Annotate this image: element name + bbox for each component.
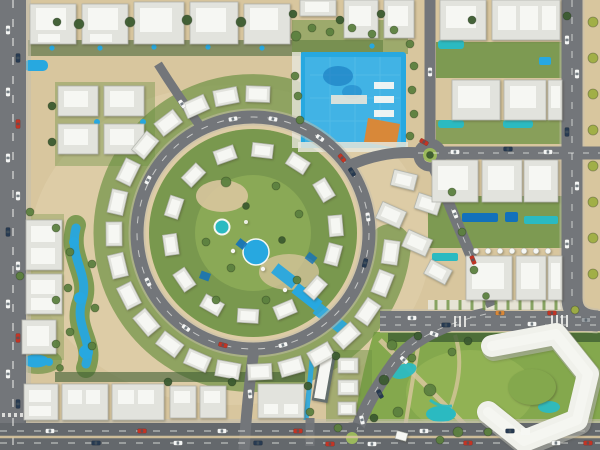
car <box>565 240 569 249</box>
villa-roof-unit <box>341 383 354 392</box>
tree <box>468 16 476 24</box>
tree <box>448 188 456 196</box>
tree <box>293 276 301 284</box>
car <box>464 441 473 445</box>
tree <box>424 384 436 396</box>
tree <box>414 332 422 340</box>
apartment-block-roof-unit <box>264 404 278 414</box>
car <box>326 442 335 446</box>
villa-roof-unit <box>341 361 354 370</box>
car-windshield <box>221 429 224 432</box>
tree <box>306 408 314 416</box>
car <box>575 70 579 79</box>
tree <box>91 304 99 312</box>
apartment-block <box>492 0 560 40</box>
lagoon-pond-3 <box>69 237 79 247</box>
yard-pool-3 <box>151 44 156 49</box>
car-windshield <box>297 429 300 432</box>
tree <box>588 89 598 99</box>
apartment-block-roof-unit <box>542 6 556 30</box>
car-windshield <box>531 322 534 325</box>
tree <box>236 17 246 27</box>
car <box>506 429 515 433</box>
tree <box>74 19 84 29</box>
car-windshield <box>423 429 426 432</box>
car-windshield <box>547 150 550 153</box>
apartment-block <box>482 160 522 202</box>
tree <box>57 365 64 372</box>
tree <box>202 238 210 246</box>
tree <box>243 203 250 210</box>
villa-roof <box>254 145 270 156</box>
car-windshield <box>587 441 590 444</box>
villa <box>170 386 196 418</box>
car-windshield <box>551 311 554 314</box>
car-windshield <box>509 429 512 432</box>
tree <box>588 233 598 243</box>
yard-pool-5 <box>259 45 264 50</box>
umbrella <box>497 248 503 254</box>
tree <box>408 354 416 362</box>
tree <box>410 110 418 118</box>
villa-roof-unit <box>110 129 134 145</box>
car-windshield <box>575 73 578 76</box>
center-main-pool <box>243 239 269 265</box>
villa <box>162 233 179 256</box>
aerial-masterplan-screenshot <box>0 0 600 450</box>
pool-deck-pier-3 <box>374 110 394 117</box>
apartment-block-roof-unit <box>118 390 134 404</box>
tree <box>427 152 434 159</box>
apartment-block-roof-unit <box>250 8 278 30</box>
tree <box>370 414 378 422</box>
apartment-slab-roof-unit <box>31 280 55 294</box>
car <box>408 316 417 320</box>
tree <box>453 427 463 437</box>
car-windshield <box>16 57 19 60</box>
car-windshield <box>231 117 234 121</box>
tree <box>66 328 74 336</box>
tree <box>48 102 56 110</box>
umbrella <box>533 248 539 254</box>
car <box>528 322 537 326</box>
tree <box>390 26 398 34</box>
tree <box>368 30 376 38</box>
apartment-block <box>504 80 546 120</box>
pool-cabana <box>283 288 287 292</box>
car-windshield <box>16 123 19 126</box>
villa-roof-unit <box>204 391 220 403</box>
tree <box>52 340 60 348</box>
apartment-block-roof-unit <box>284 404 298 414</box>
villa-roof <box>331 218 341 234</box>
yard-pool-4 <box>205 44 210 49</box>
yard-pool-6 <box>369 43 374 48</box>
apartment-block <box>258 384 304 418</box>
car <box>582 318 591 322</box>
car <box>218 429 227 433</box>
tree <box>164 378 172 386</box>
apartment-block-roof-unit <box>140 8 172 32</box>
tree <box>52 224 60 232</box>
tree <box>48 138 56 146</box>
apartment-block <box>30 4 76 44</box>
apartment-block-roof-unit <box>90 34 112 42</box>
tree <box>406 40 414 48</box>
apartment-block-roof-unit <box>138 390 154 404</box>
car-windshield <box>555 441 558 444</box>
tree <box>334 424 342 432</box>
villa <box>338 380 358 395</box>
tree <box>408 86 416 94</box>
villa <box>338 402 356 415</box>
park-pond-2 <box>426 406 456 422</box>
tree <box>458 228 466 236</box>
apartment-block-roof-unit <box>349 6 371 26</box>
tree <box>464 337 472 345</box>
umbrella <box>473 248 479 254</box>
car-windshield <box>141 429 144 432</box>
car-windshield <box>565 131 568 134</box>
palm-shadow-1 <box>323 66 353 86</box>
car <box>552 441 561 445</box>
tree <box>228 378 236 386</box>
car-windshield <box>49 429 52 432</box>
tree <box>483 293 490 300</box>
mid-pool-2 <box>505 212 518 222</box>
apartment-block-roof-unit <box>438 166 468 190</box>
tree <box>272 182 280 190</box>
car-windshield <box>6 91 9 94</box>
car <box>247 389 252 398</box>
villa <box>251 142 273 158</box>
car <box>368 442 377 446</box>
pool-cabana <box>261 267 265 271</box>
small-pool-left-2 <box>45 358 53 366</box>
villa <box>237 308 259 323</box>
villa-roof <box>251 366 270 378</box>
apartment-block <box>190 2 238 44</box>
car <box>496 311 505 315</box>
aerial-render <box>0 0 600 450</box>
apartment-block-roof-unit <box>458 86 490 108</box>
car <box>6 26 10 35</box>
car <box>548 311 557 315</box>
villa <box>338 358 358 373</box>
car-windshield <box>565 39 568 42</box>
tree <box>379 375 389 385</box>
tree <box>448 348 456 356</box>
apartment-block <box>24 384 58 420</box>
villa-roof-unit <box>341 405 352 413</box>
tree <box>436 436 444 444</box>
apartment-block <box>548 80 562 120</box>
tree <box>393 407 403 417</box>
car-windshield <box>445 323 448 326</box>
car <box>46 429 55 433</box>
park-pavilion <box>521 428 530 435</box>
tree <box>308 24 316 32</box>
car-windshield <box>6 373 9 376</box>
tree <box>588 161 598 171</box>
car-windshield <box>257 441 260 444</box>
car-windshield <box>507 147 510 150</box>
apartment-block-roof-unit <box>388 6 408 26</box>
villa <box>246 86 271 103</box>
umbrella <box>521 248 527 254</box>
tree <box>64 284 72 292</box>
tree <box>227 264 235 272</box>
apartment-block-roof-unit <box>29 406 51 416</box>
car <box>565 36 569 45</box>
tree <box>294 92 302 100</box>
tree <box>52 296 60 304</box>
tree <box>16 272 24 280</box>
apartment-block-roof-unit <box>488 166 514 190</box>
pool-deck-pier-1 <box>374 82 394 89</box>
car-windshield <box>565 243 568 246</box>
car <box>6 228 10 237</box>
apartment-block-roof-unit <box>551 86 560 108</box>
tree <box>212 296 220 304</box>
villa <box>106 222 122 246</box>
car <box>544 150 553 154</box>
pool-deck-pier-2 <box>374 96 394 103</box>
apartment-block <box>62 384 108 420</box>
apartment-block <box>384 0 414 38</box>
apartment-block <box>524 160 558 202</box>
umbrella <box>509 248 515 254</box>
tree <box>470 266 478 274</box>
apartment-block-roof-unit <box>29 390 51 402</box>
villa <box>381 239 400 265</box>
car-windshield <box>6 303 9 306</box>
car <box>16 120 20 129</box>
apartment-block-roof-unit <box>521 263 539 289</box>
car <box>6 154 10 163</box>
tree <box>295 210 303 218</box>
car-windshield <box>16 337 19 340</box>
apartment-block <box>432 160 478 202</box>
car-windshield <box>177 441 180 444</box>
villa <box>104 86 144 116</box>
apartment-slab-roof-unit <box>31 226 55 242</box>
villa <box>328 215 344 237</box>
tree <box>588 269 598 279</box>
apartment-block <box>548 256 562 300</box>
pool-cabana <box>244 220 248 224</box>
mid-pool-4 <box>432 253 458 261</box>
villa-roof <box>108 225 119 243</box>
car-windshield <box>271 117 274 121</box>
apartment-block-roof-unit <box>68 390 82 404</box>
car-windshield <box>248 392 251 395</box>
apartment-block <box>134 2 184 44</box>
apartment-block <box>516 256 546 300</box>
car-windshield <box>6 157 9 160</box>
tr-pool-3 <box>438 120 464 128</box>
apartment-block <box>300 0 336 16</box>
villa-roof <box>240 311 256 321</box>
apartment-block-roof-unit <box>36 8 66 30</box>
tree <box>279 237 286 244</box>
car <box>504 147 513 151</box>
car-windshield <box>6 231 9 234</box>
apartment-block <box>112 384 164 420</box>
car-windshield <box>575 185 578 188</box>
villa-roof-unit <box>64 129 88 145</box>
car-windshield <box>467 441 470 444</box>
apartment-slab <box>22 320 56 354</box>
car <box>565 128 569 137</box>
apartment-block-roof-unit <box>510 86 536 108</box>
tree <box>221 177 231 187</box>
car <box>584 441 593 445</box>
apartment-block-roof-unit <box>520 6 538 30</box>
apartment-block-roof-unit <box>196 8 226 32</box>
tree <box>262 296 270 304</box>
car <box>420 429 429 433</box>
apartment-block-roof-unit <box>88 8 118 30</box>
umbrella <box>485 248 491 254</box>
car <box>16 334 20 343</box>
apartment-block-roof-unit <box>305 2 329 12</box>
villa <box>200 386 226 418</box>
pool-lounger-strip <box>331 95 367 104</box>
apartment-block <box>82 4 128 44</box>
tr-pool-4 <box>503 120 533 128</box>
lagoon-pond-1 <box>74 292 86 304</box>
tree <box>336 16 344 24</box>
tree <box>563 12 571 20</box>
center-round-pool <box>215 220 230 235</box>
car <box>575 182 579 191</box>
tree <box>588 197 598 207</box>
car-windshield <box>16 265 19 268</box>
car-windshield <box>16 403 19 406</box>
tree <box>571 306 579 314</box>
villa-roof-unit <box>110 91 134 107</box>
yard-pool-2 <box>97 45 102 50</box>
apartment-block-roof-unit <box>529 166 551 190</box>
tree <box>406 132 414 140</box>
tree <box>66 248 74 256</box>
mid-pool-1 <box>462 213 498 222</box>
villa <box>247 363 272 380</box>
tree <box>88 260 96 268</box>
tree <box>588 17 598 27</box>
car-windshield <box>585 318 588 321</box>
car <box>451 150 460 154</box>
apartment-block <box>244 4 290 44</box>
car-windshield <box>366 215 370 218</box>
tree <box>291 31 301 41</box>
tree <box>26 208 34 216</box>
apartment-block-roof-unit <box>38 34 60 42</box>
tr-pool-1 <box>438 40 464 49</box>
tree <box>291 72 299 80</box>
car <box>174 441 183 445</box>
tree <box>296 116 304 124</box>
tree <box>348 24 356 32</box>
apartment-slab-roof-unit <box>27 326 49 346</box>
tree <box>326 28 334 36</box>
tree <box>332 352 340 360</box>
car-windshield <box>499 311 502 314</box>
apartment-slab-roof-unit <box>31 248 55 264</box>
car <box>16 54 20 63</box>
car <box>6 88 10 97</box>
tree <box>304 382 312 390</box>
tree <box>410 62 418 70</box>
car <box>138 429 147 433</box>
clubhouse-courtyard <box>508 369 556 405</box>
car <box>6 370 10 379</box>
car <box>428 68 432 77</box>
car <box>16 262 20 271</box>
car <box>16 400 20 409</box>
tree <box>182 15 192 25</box>
apartment-block-roof-unit <box>551 263 560 289</box>
tree <box>88 342 96 350</box>
car-windshield <box>411 316 414 319</box>
villa <box>58 124 98 154</box>
car-windshield <box>428 71 431 74</box>
apartment-block <box>452 80 500 120</box>
car-windshield <box>95 441 98 444</box>
car <box>294 429 303 433</box>
tree <box>484 428 492 436</box>
car <box>442 323 451 327</box>
tree <box>289 10 297 18</box>
mid-pool-3 <box>524 216 558 224</box>
villa-roof-unit <box>174 391 190 403</box>
car-windshield <box>371 442 374 445</box>
tree <box>588 53 598 63</box>
umbrella <box>545 248 551 254</box>
apartment-block-roof-unit <box>86 390 100 404</box>
car <box>16 192 20 201</box>
car <box>92 441 101 445</box>
apartment-slab <box>26 274 62 314</box>
tr-pool-2 <box>539 57 551 65</box>
tree <box>387 340 397 350</box>
car-windshield <box>6 29 9 32</box>
car <box>254 441 263 445</box>
apartment-block <box>440 0 486 40</box>
car-windshield <box>454 150 457 153</box>
apartment-block-roof-unit <box>498 6 516 30</box>
apartment-slab-roof-unit <box>31 298 55 310</box>
pool-cabana <box>231 249 235 253</box>
tree <box>53 18 61 26</box>
yard-pool-1 <box>49 45 54 50</box>
car-windshield <box>329 442 332 445</box>
tree <box>588 125 598 135</box>
car-windshield <box>16 195 19 198</box>
tree <box>125 17 135 27</box>
villa-roof-unit <box>64 91 88 107</box>
car <box>6 300 10 309</box>
tree <box>377 10 385 18</box>
villa <box>58 86 98 116</box>
villa-roof <box>249 88 267 100</box>
